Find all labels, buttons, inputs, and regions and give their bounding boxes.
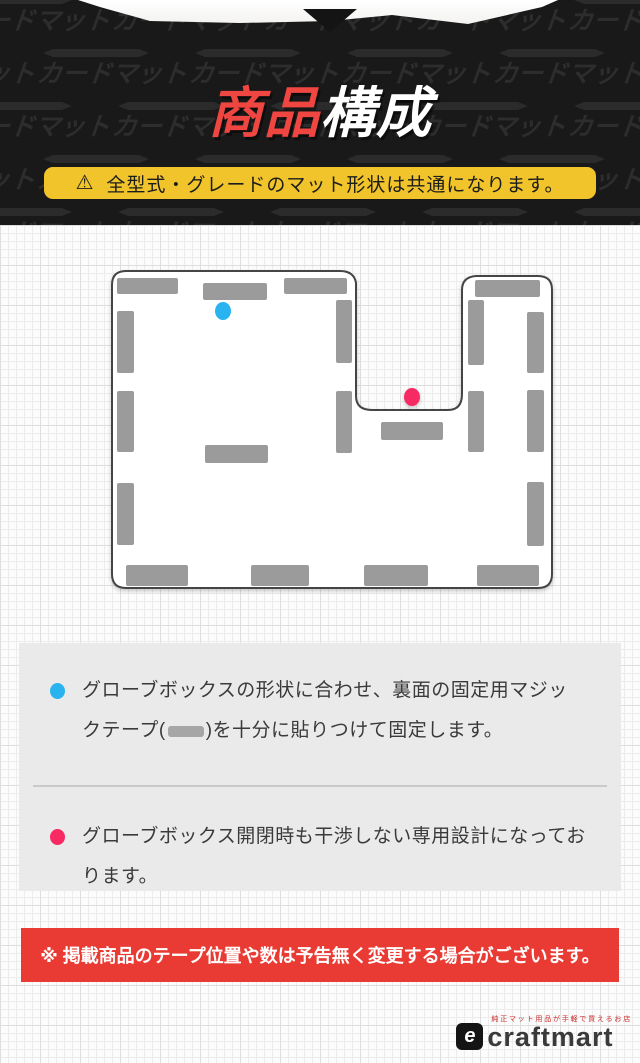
tape-swatch-icon	[168, 726, 204, 737]
section-title-red: 商品	[208, 82, 320, 144]
disclaimer-banner: ※ 掲載商品のテープ位置や数は予告無く変更する場合がございます。	[21, 928, 619, 982]
warning-triangle-icon: ⚠	[75, 173, 94, 193]
brand-wordmark: craftmart	[487, 1024, 613, 1050]
notes-card: グローブボックスの形状に合わせ、裏面の固定用マジックテープ()を十分に貼りつけて…	[19, 643, 621, 891]
note-item-clearance: グローブボックス開閉時も干渉しない専用設計になっております。	[19, 817, 621, 897]
warning-text: 全型式・グレードのマット形状は共通になります。	[106, 170, 564, 197]
mat-shape-diagram	[0, 225, 640, 635]
section-title-white: 構成	[320, 82, 432, 144]
product-info-image: カードマットカードマットカードマットカードマットカードマットカードマットカードマ…	[0, 0, 640, 1063]
down-arrow-icon	[303, 9, 357, 32]
header-banner: カードマットカードマットカードマットカードマットカードマットカードマットカードマ…	[0, 0, 640, 225]
blue-bullet-icon	[50, 683, 65, 699]
compatibility-warning-banner: ⚠ 全型式・グレードのマット形状は共通になります。	[44, 167, 596, 199]
note-text-fixing: グローブボックスの形状に合わせ、裏面の固定用マジックテープ()を十分に貼りつけて…	[82, 671, 587, 751]
craftmart-logo-icon: e	[456, 1023, 483, 1050]
note-item-fixing: グローブボックスの形状に合わせ、裏面の固定用マジックテープ()を十分に貼りつけて…	[19, 671, 621, 751]
section-title: 商品構成	[0, 82, 640, 144]
pink-bullet-icon	[50, 829, 65, 845]
diagram-section: グローブボックスの形状に合わせ、裏面の固定用マジックテープ()を十分に貼りつけて…	[0, 225, 640, 1063]
craftmart-logo: e 純正マット用品が手軽で買えるお店 craftmart	[456, 1016, 632, 1050]
note-divider	[33, 785, 607, 787]
note-text-clearance: グローブボックス開閉時も干渉しない専用設計になっております。	[82, 817, 587, 897]
